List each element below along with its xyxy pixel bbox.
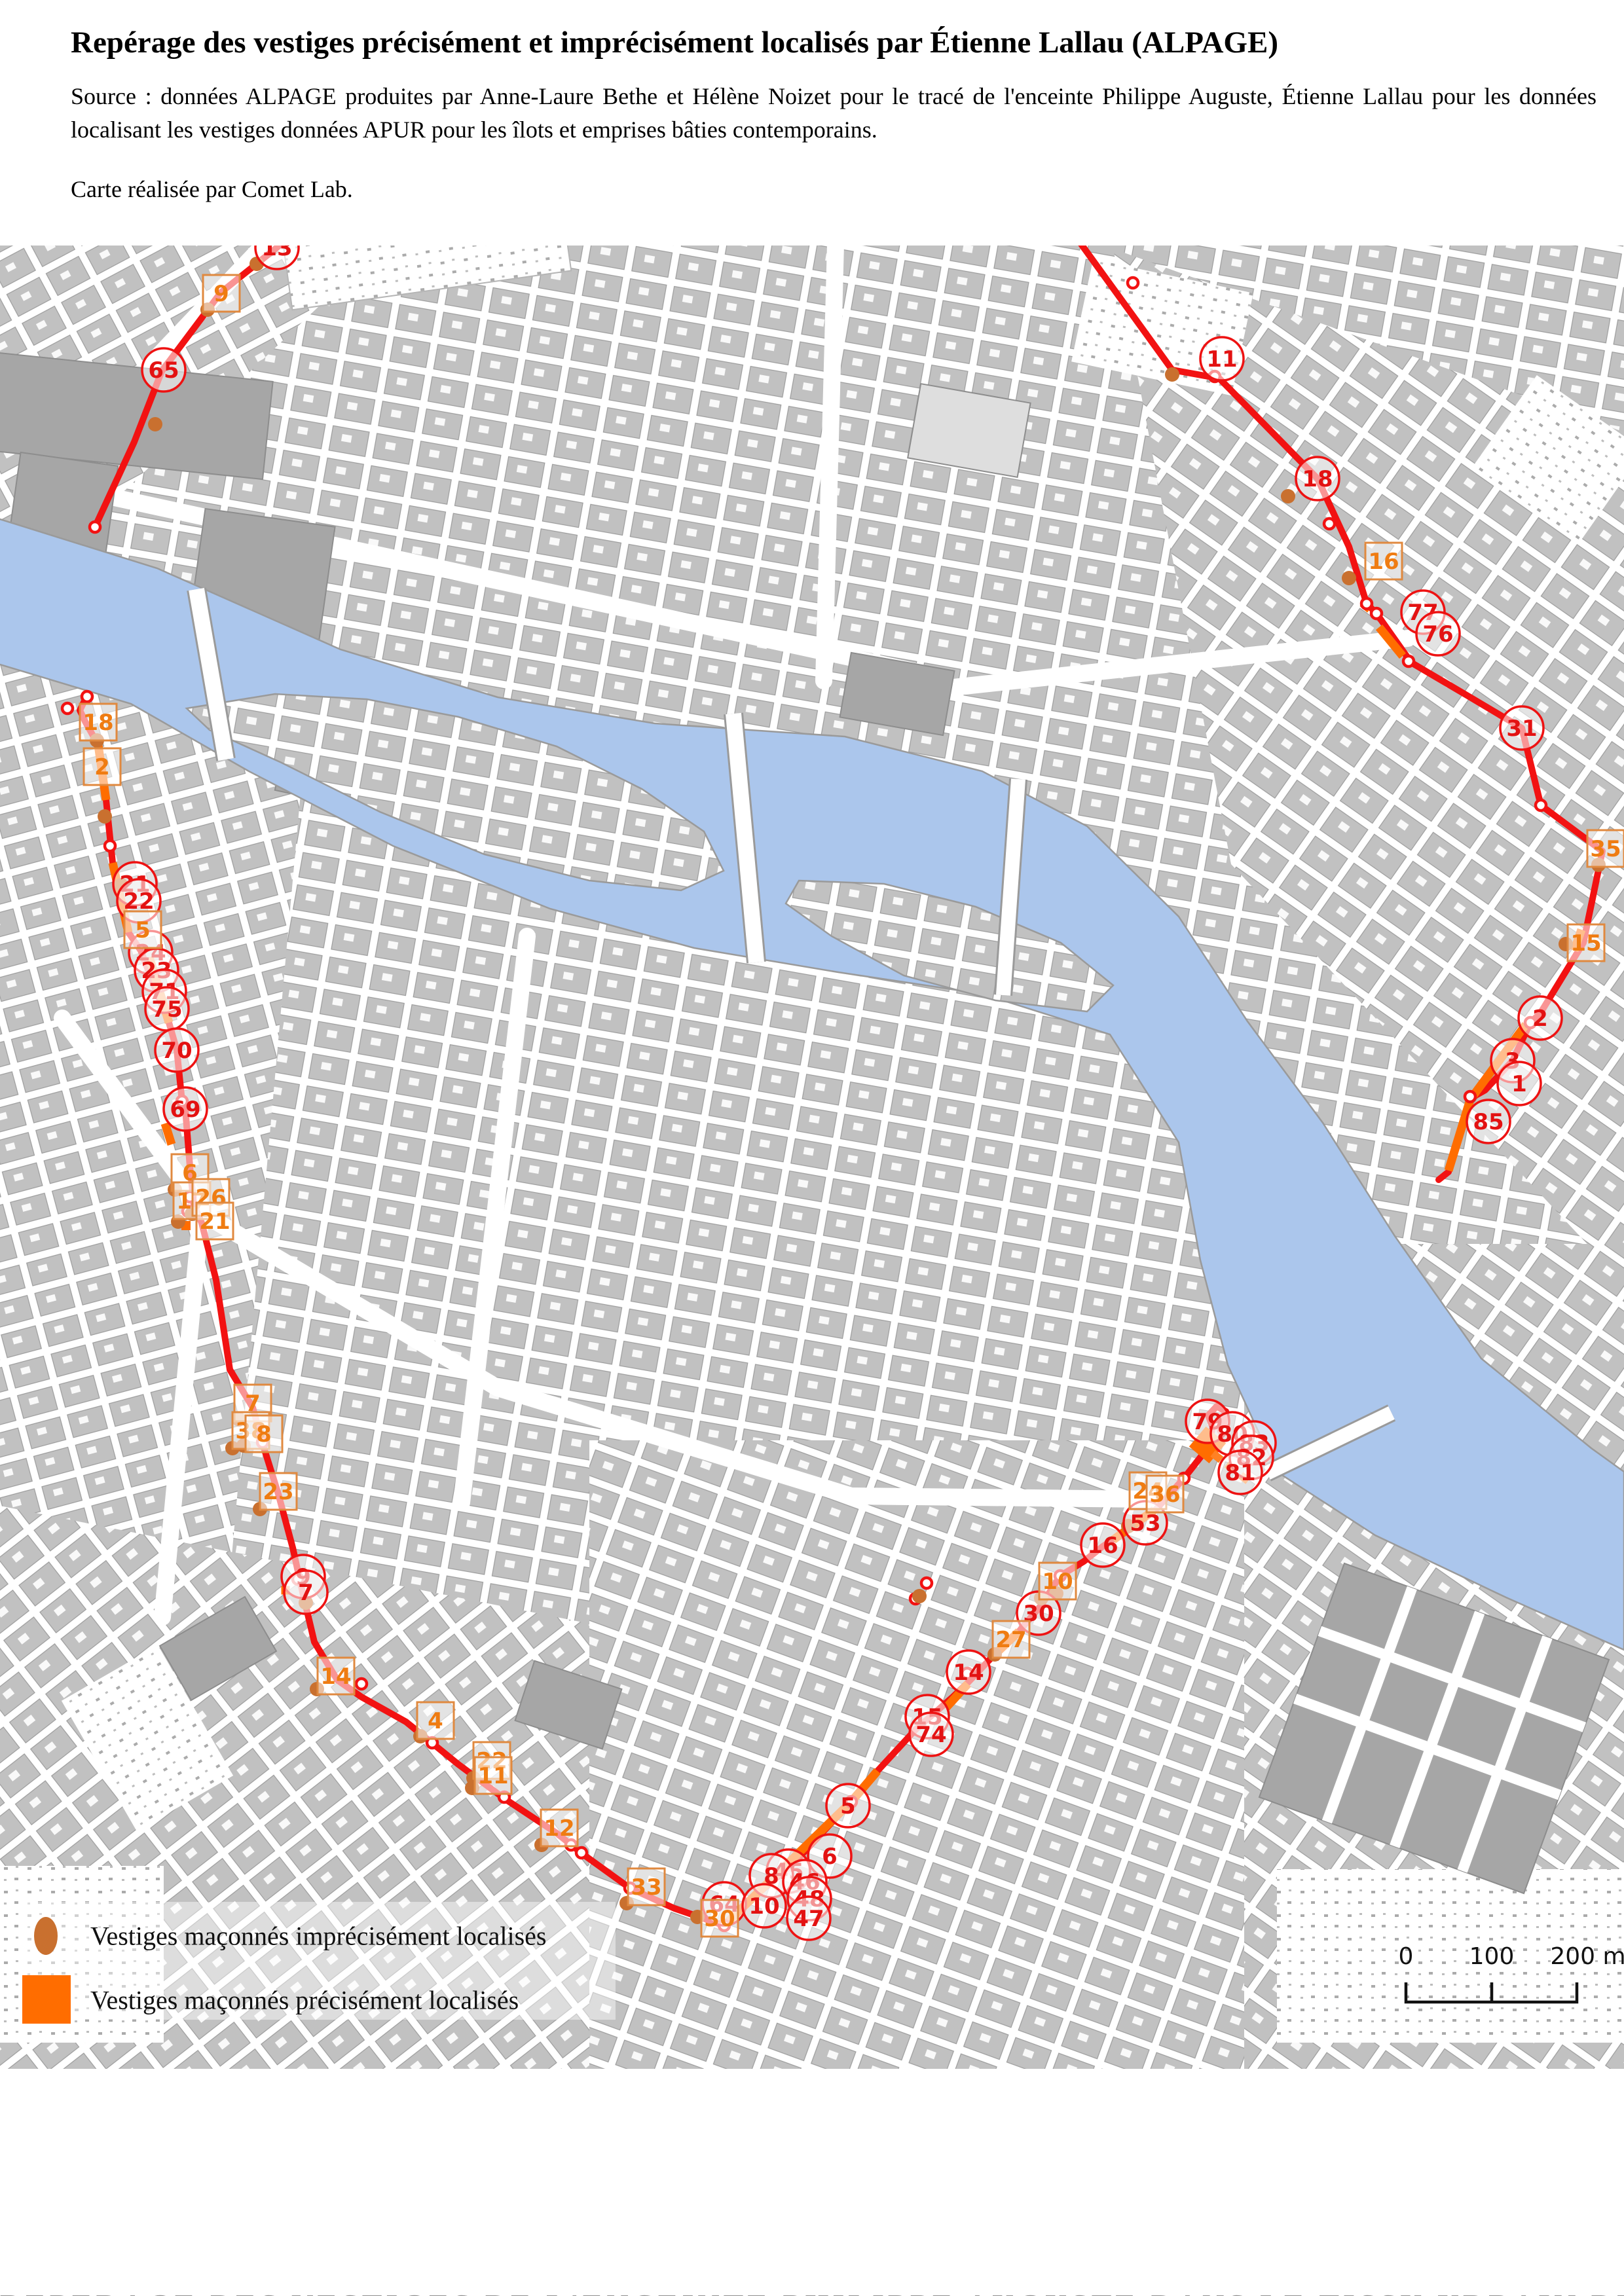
marker-number: 65 bbox=[148, 357, 179, 384]
vestige-marker-square-30[interactable]: 30 bbox=[701, 1900, 738, 1937]
marker-number: 81 bbox=[1225, 1460, 1255, 1486]
vestige-marker-square-35[interactable]: 35 bbox=[1587, 830, 1624, 867]
marker-number: 1 bbox=[1511, 1071, 1527, 1097]
vestige-marker-square-10[interactable]: 10 bbox=[1039, 1563, 1076, 1599]
vestige-marker-square-21[interactable]: 21 bbox=[196, 1203, 233, 1239]
vestige-marker-circle-65[interactable]: 65 bbox=[142, 348, 185, 392]
marker-number: 2 bbox=[94, 754, 110, 780]
marker-number: 30 bbox=[704, 1906, 735, 1932]
vestige-marker-square-2[interactable]: 2 bbox=[84, 748, 120, 785]
marker-number: 11 bbox=[477, 1763, 508, 1789]
marker-number: 74 bbox=[915, 1722, 946, 1748]
marker-number: 35 bbox=[1590, 836, 1621, 862]
vestige-marker-square-23[interactable]: 23 bbox=[260, 1473, 297, 1510]
scale-label-0: 0 bbox=[1399, 1943, 1414, 1970]
map-page: 8437361241365111877763123185212224237175… bbox=[0, 0, 1624, 2296]
map-credit-text: Carte réalisée par Comet Lab. bbox=[71, 175, 1380, 203]
vestige-marker-circle-70[interactable]: 70 bbox=[155, 1029, 198, 1072]
marker-number: 33 bbox=[631, 1874, 661, 1901]
imprecise-vestige-dot[interactable] bbox=[1281, 489, 1295, 503]
map-canvas[interactable]: 8437361241365111877763123185212224237175… bbox=[0, 0, 1624, 2069]
map-source-text: Source : données ALPAGE produites par An… bbox=[71, 80, 1596, 147]
marker-number: 23 bbox=[263, 1479, 293, 1505]
wall-vertex-ring bbox=[105, 841, 115, 851]
marker-number: 36 bbox=[1149, 1482, 1180, 1508]
marker-number: 75 bbox=[151, 996, 182, 1023]
wall-vertex-ring bbox=[356, 1679, 367, 1689]
marker-number: 85 bbox=[1473, 1109, 1504, 1135]
vestige-marker-square-14[interactable]: 14 bbox=[318, 1658, 354, 1694]
legend-precise-label: Vestiges maçonnés précisément localisés bbox=[90, 1986, 519, 2015]
wall-vertex-ring bbox=[921, 1578, 932, 1588]
scale-label-200m: 200 m bbox=[1550, 1943, 1624, 1970]
marker-number: 10 bbox=[748, 1893, 779, 1920]
vestige-marker-circle-75[interactable]: 75 bbox=[145, 987, 189, 1030]
vestige-marker-circle-74[interactable]: 74 bbox=[910, 1713, 953, 1756]
marker-number: 5 bbox=[135, 917, 151, 943]
marker-number: 76 bbox=[1422, 621, 1453, 647]
marker-number: 27 bbox=[995, 1627, 1026, 1653]
marker-number: 14 bbox=[320, 1664, 351, 1690]
legend: Vestiges maçonnés imprécisément localisé… bbox=[20, 1902, 616, 2024]
vestige-marker-circle-47[interactable]: 47 bbox=[787, 1897, 830, 1940]
vestige-marker-circle-11[interactable]: 11 bbox=[1200, 337, 1244, 380]
marker-number: 2 bbox=[1532, 1006, 1548, 1032]
vestige-marker-circle-85[interactable]: 85 bbox=[1467, 1100, 1510, 1143]
wall-vertex-ring bbox=[1128, 278, 1138, 288]
marker-number: 69 bbox=[170, 1097, 200, 1123]
vestige-marker-square-18[interactable]: 18 bbox=[80, 704, 117, 740]
imprecise-vestige-dot[interactable] bbox=[912, 1589, 927, 1603]
imprecise-vestige-dot[interactable] bbox=[148, 417, 162, 431]
vestige-marker-square-11[interactable]: 11 bbox=[475, 1757, 511, 1794]
vestige-marker-circle-5[interactable]: 5 bbox=[826, 1784, 870, 1827]
vestige-marker-circle-16[interactable]: 16 bbox=[1081, 1523, 1124, 1567]
vestige-marker-square-9[interactable]: 9 bbox=[203, 275, 240, 312]
wall-vertex-ring bbox=[90, 522, 100, 532]
imprecise-vestige-dot[interactable] bbox=[98, 809, 112, 824]
wall-vertex-ring bbox=[82, 691, 92, 702]
wall-vertex-ring bbox=[576, 1848, 587, 1858]
wall-vertex-ring bbox=[1371, 608, 1382, 619]
caption-block: Repérage des vestiges précisément et imp… bbox=[0, 0, 1624, 246]
marker-number: 47 bbox=[793, 1906, 824, 1932]
wall-vertex-ring bbox=[1465, 1091, 1475, 1102]
wall-vertex-ring bbox=[1536, 800, 1546, 811]
vestige-marker-square-15[interactable]: 15 bbox=[1568, 924, 1604, 961]
marker-number: 18 bbox=[83, 710, 113, 736]
imprecise-vestige-dot[interactable] bbox=[1342, 571, 1356, 585]
vestige-marker-circle-76[interactable]: 76 bbox=[1416, 612, 1460, 655]
marker-number: 5 bbox=[840, 1793, 856, 1819]
vestige-marker-circle-31[interactable]: 31 bbox=[1500, 706, 1543, 750]
clipped-text-strip: REPERAGE DES VESTIGES DE L'ENCEINTE PHIL… bbox=[0, 2287, 1624, 2296]
marker-number: 53 bbox=[1130, 1510, 1160, 1537]
marker-number: 12 bbox=[544, 1815, 574, 1842]
imprecise-vestige-dot[interactable] bbox=[1165, 367, 1179, 382]
vestige-marker-square-16[interactable]: 16 bbox=[1365, 543, 1402, 579]
vestige-marker-square-5[interactable]: 5 bbox=[124, 911, 161, 948]
legend-precise-square-icon bbox=[22, 1975, 71, 2024]
scale-label-100: 100 bbox=[1469, 1943, 1515, 1970]
vestige-marker-circle-69[interactable]: 69 bbox=[164, 1087, 207, 1131]
vestige-marker-circle-18[interactable]: 18 bbox=[1296, 457, 1339, 500]
marker-number: 21 bbox=[199, 1209, 230, 1235]
marker-number: 16 bbox=[1087, 1533, 1118, 1559]
map-title: Repérage des vestiges précisément et imp… bbox=[71, 25, 1570, 60]
marker-number: 16 bbox=[1368, 549, 1399, 575]
vestige-marker-square-33[interactable]: 33 bbox=[628, 1868, 665, 1905]
vestige-marker-square-8[interactable]: 8 bbox=[246, 1415, 282, 1452]
marker-number: 18 bbox=[1302, 466, 1333, 492]
vestige-marker-square-12[interactable]: 12 bbox=[541, 1810, 578, 1846]
legend-imprecise-dot-icon bbox=[34, 1917, 58, 1955]
vestige-marker-circle-10[interactable]: 10 bbox=[743, 1884, 786, 1927]
wall-vertex-ring bbox=[62, 703, 73, 714]
wall-vertex-ring bbox=[1361, 598, 1372, 609]
marker-number: 9 bbox=[213, 281, 229, 307]
marker-number: 70 bbox=[161, 1038, 192, 1064]
wall-vertex-ring bbox=[1324, 519, 1335, 529]
vestige-marker-circle-14[interactable]: 14 bbox=[947, 1650, 990, 1694]
marker-number: 31 bbox=[1506, 716, 1537, 742]
marker-number: 6 bbox=[822, 1844, 838, 1870]
marker-number: 14 bbox=[953, 1660, 984, 1686]
vestige-marker-circle-2[interactable]: 2 bbox=[1519, 996, 1562, 1040]
vestige-marker-square-36[interactable]: 36 bbox=[1147, 1476, 1183, 1512]
vestige-marker-circle-81[interactable]: 81 bbox=[1219, 1451, 1262, 1494]
wall-vertex-ring bbox=[1403, 656, 1414, 666]
vestige-marker-circle-1[interactable]: 1 bbox=[1498, 1062, 1541, 1105]
marker-number: 8 bbox=[256, 1421, 272, 1448]
legend-imprecise-label: Vestiges maçonnés imprécisément localisé… bbox=[90, 1922, 546, 1951]
marker-number: 15 bbox=[1570, 930, 1601, 957]
marker-number: 10 bbox=[1042, 1569, 1073, 1595]
vestige-marker-square-27[interactable]: 27 bbox=[993, 1621, 1029, 1658]
marker-number: 4 bbox=[428, 1708, 443, 1734]
marker-number: 11 bbox=[1206, 346, 1237, 373]
vestige-marker-square-4[interactable]: 4 bbox=[417, 1702, 454, 1739]
marker-number: 7 bbox=[298, 1580, 314, 1606]
vestige-marker-circle-7[interactable]: 7 bbox=[284, 1571, 327, 1614]
